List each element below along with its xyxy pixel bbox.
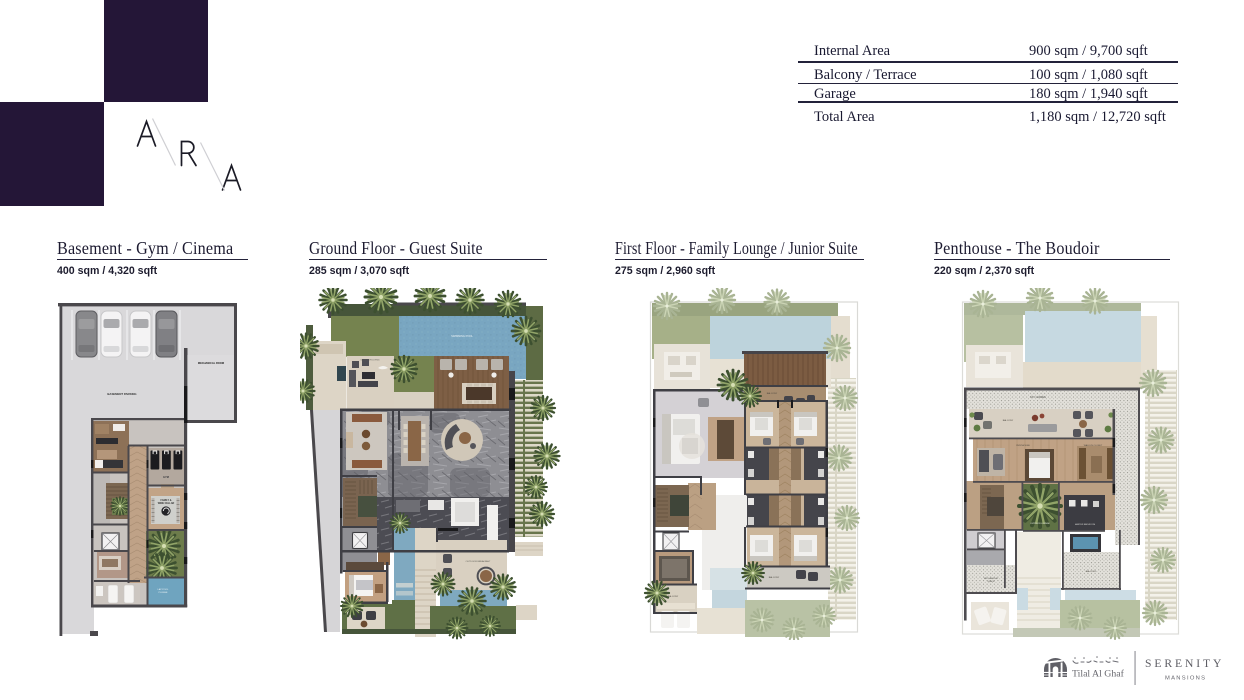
svg-text:Tilal Al Ghaf: Tilal Al Ghaf <box>1072 669 1125 680</box>
svg-text:OUTDOOR LIVING: OUTDOOR LIVING <box>361 360 380 362</box>
svg-text:BALCONY: BALCONY <box>668 595 679 598</box>
svg-text:GYM: GYM <box>163 475 169 479</box>
svg-text:BASEMENT PARKING: BASEMENT PARKING <box>107 392 136 396</box>
svg-text:SKY GARDEN: SKY GARDEN <box>1030 396 1046 399</box>
svg-text:MECHANICAL ROOM: MECHANICAL ROOM <box>198 361 224 365</box>
svg-text:SPACE: SPACE <box>987 580 995 583</box>
svg-text:SERENITY: SERENITY <box>1145 657 1224 670</box>
svg-text:SWIMMING POOL: SWIMMING POOL <box>451 334 473 338</box>
svg-text:PLUNGE: PLUNGE <box>159 592 169 594</box>
svg-text:PENTHOUSE: PENTHOUSE <box>1016 445 1030 447</box>
svg-text:BALCONY: BALCONY <box>767 392 778 395</box>
svg-text:LAP POOL: LAP POOL <box>158 588 170 591</box>
svg-text:MECHANICAL: MECHANICAL <box>984 577 999 580</box>
svg-text:WINE CELLAR: WINE CELLAR <box>158 502 175 505</box>
svg-text:MANSIONS: MANSIONS <box>1165 676 1206 682</box>
svg-text:OUTDOOR BREAKFAST: OUTDOOR BREAKFAST <box>466 560 491 563</box>
svg-text:BALCONY: BALCONY <box>1086 570 1097 573</box>
svg-text:MASTER BATHROOM: MASTER BATHROOM <box>1075 523 1096 526</box>
svg-text:BALCONY: BALCONY <box>769 576 780 579</box>
svg-text:OUTDOOR LOUNGE: OUTDOOR LOUNGE <box>1030 523 1050 525</box>
svg-text:BALCONY: BALCONY <box>1003 419 1014 422</box>
